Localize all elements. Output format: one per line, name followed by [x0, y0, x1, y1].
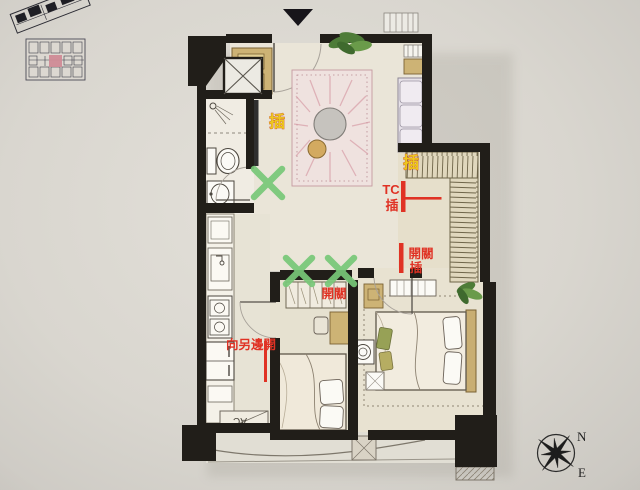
outlet-annotation-tv: 插	[269, 112, 285, 131]
compass-rose-icon: N E	[525, 422, 587, 484]
toilet-icon	[207, 148, 239, 174]
svg-text:向另邊開: 向另邊開	[226, 337, 276, 352]
tv-icon	[254, 100, 259, 166]
floor-plan-photo: AC	[0, 0, 640, 490]
svg-text:TC: TC	[382, 182, 400, 197]
pillow	[443, 316, 463, 349]
floor-plan-drawing: AC	[0, 0, 640, 490]
compass-north-label: N	[577, 429, 587, 444]
coffee-table	[314, 108, 346, 140]
entrance-marker-icon	[283, 9, 313, 26]
desk-chair	[314, 317, 328, 334]
svg-text:插: 插	[385, 198, 398, 213]
kitchen-sink-icon	[208, 248, 232, 290]
outlet-annotation-wardrobe: 插	[403, 153, 419, 172]
cropped-plan-fragment	[10, 0, 90, 33]
accent-pillow	[379, 351, 393, 370]
svg-text:插: 插	[410, 260, 423, 275]
bed-headboard	[466, 310, 476, 392]
key-plan-stamp	[26, 39, 85, 80]
shelf-switch-annotation: 開關	[321, 287, 346, 301]
stove-icon	[208, 296, 232, 338]
pillow	[443, 351, 462, 384]
compass-east-label: E	[578, 465, 586, 480]
wall-column	[455, 415, 497, 467]
nightstand	[364, 284, 383, 308]
ottoman	[308, 140, 326, 158]
svg-text:開關: 開關	[408, 247, 433, 261]
shaft-box	[224, 58, 262, 94]
key-plan-unit-highlight	[49, 55, 62, 67]
pillow	[319, 379, 344, 405]
wall-column	[182, 425, 216, 461]
pillow	[319, 405, 343, 428]
ledge-hatch	[456, 467, 494, 480]
kitchen	[206, 214, 234, 423]
